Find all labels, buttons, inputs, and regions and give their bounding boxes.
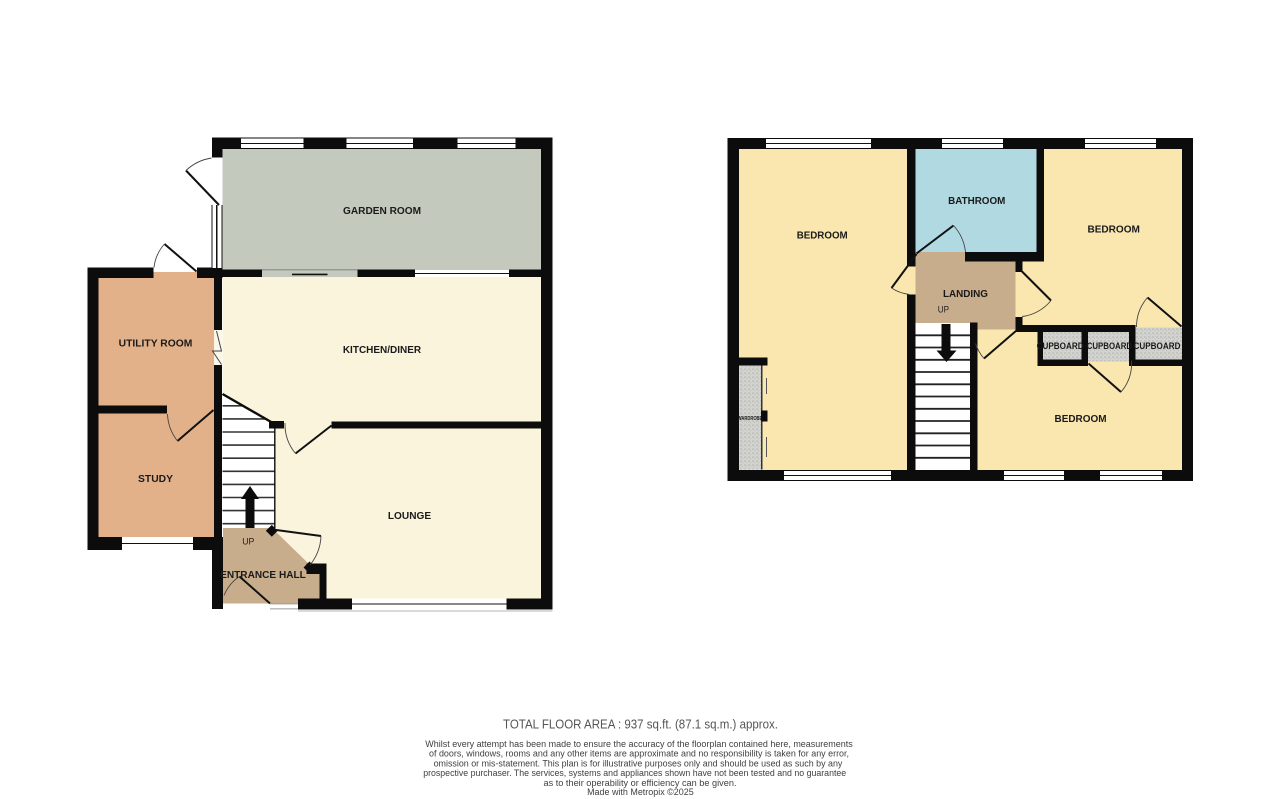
svg-text:UTILITY ROOM: UTILITY ROOM: [119, 338, 193, 349]
svg-text:ENTRANCE HALL: ENTRANCE HALL: [220, 570, 306, 581]
svg-text:BEDROOM: BEDROOM: [797, 230, 848, 241]
svg-text:prospective purchaser. The ser: prospective purchaser. The services, sys…: [423, 768, 846, 778]
svg-text:BEDROOM: BEDROOM: [1087, 225, 1140, 236]
svg-text:UP: UP: [938, 305, 949, 316]
svg-text:STUDY: STUDY: [138, 474, 173, 485]
svg-text:KITCHEN/DINER: KITCHEN/DINER: [343, 345, 422, 356]
svg-text:Whilst every attempt has been: Whilst every attempt has been made to en…: [425, 739, 853, 749]
svg-text:UP: UP: [242, 537, 254, 548]
svg-text:GARDEN ROOM: GARDEN ROOM: [343, 206, 421, 217]
svg-text:CUPBOARD: CUPBOARD: [1087, 341, 1133, 351]
svg-text:Made with Metropix ©2025: Made with Metropix ©2025: [587, 787, 694, 797]
svg-text:omission or mis-statement. Thi: omission or mis-statement. This plan is …: [434, 758, 843, 768]
svg-text:BATHROOM: BATHROOM: [948, 196, 1005, 207]
svg-text:TOTAL FLOOR AREA : 937 sq.ft.: TOTAL FLOOR AREA : 937 sq.ft. (87.1 sq.m…: [503, 718, 778, 732]
svg-text:CUPBOARD: CUPBOARD: [1134, 341, 1181, 351]
svg-text:WARDROBE: WARDROBE: [738, 416, 763, 422]
svg-text:LOUNGE: LOUNGE: [388, 511, 432, 522]
svg-text:CUPBOARD: CUPBOARD: [1037, 341, 1084, 351]
svg-text:LANDING: LANDING: [943, 289, 988, 300]
svg-text:of doors, windows, rooms and a: of doors, windows, rooms and any other i…: [429, 749, 849, 759]
svg-text:BEDROOM: BEDROOM: [1055, 414, 1107, 425]
